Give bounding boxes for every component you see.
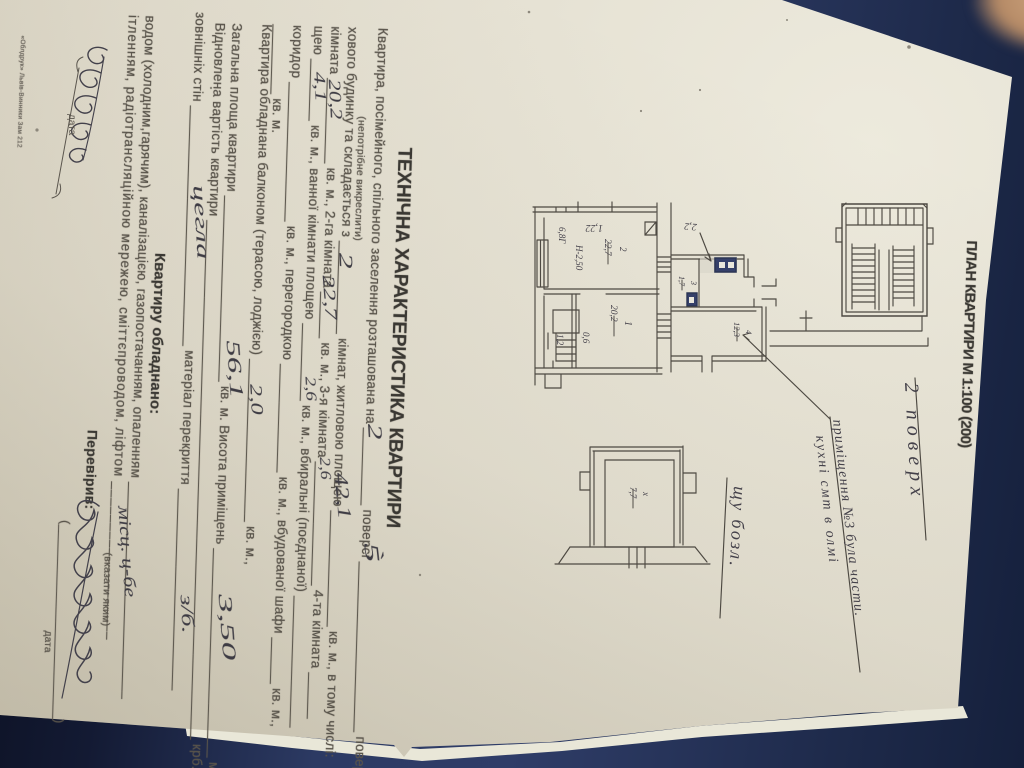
svg-text:щу бозл.: щу бозл. <box>726 486 750 569</box>
svg-text:х: х <box>641 491 651 496</box>
svg-text:20,2: 20,2 <box>608 305 618 322</box>
svg-text:2,2: 2,2 <box>684 220 697 232</box>
svg-text:дата: дата <box>66 114 77 136</box>
svg-text:2 поверх: 2 поверх <box>900 382 928 502</box>
svg-text:6,8Г: 6,8Г <box>557 227 567 244</box>
svg-text:12,3: 12,3 <box>732 322 742 337</box>
svg-text:7,7: 7,7 <box>628 487 638 499</box>
svg-text:3: 3 <box>689 280 698 285</box>
svg-text:1,22: 1,22 <box>586 222 604 233</box>
svg-text:0,6: 0,6 <box>581 332 591 344</box>
svg-text:1,7: 1,7 <box>677 276 686 287</box>
svg-text:1,2: 1,2 <box>555 334 565 346</box>
svg-text:1: 1 <box>622 321 633 326</box>
svg-text:2: 2 <box>618 247 628 252</box>
svg-text:Н-2,50: Н-2,50 <box>574 244 584 271</box>
svg-text:22,7: 22,7 <box>602 239 612 257</box>
